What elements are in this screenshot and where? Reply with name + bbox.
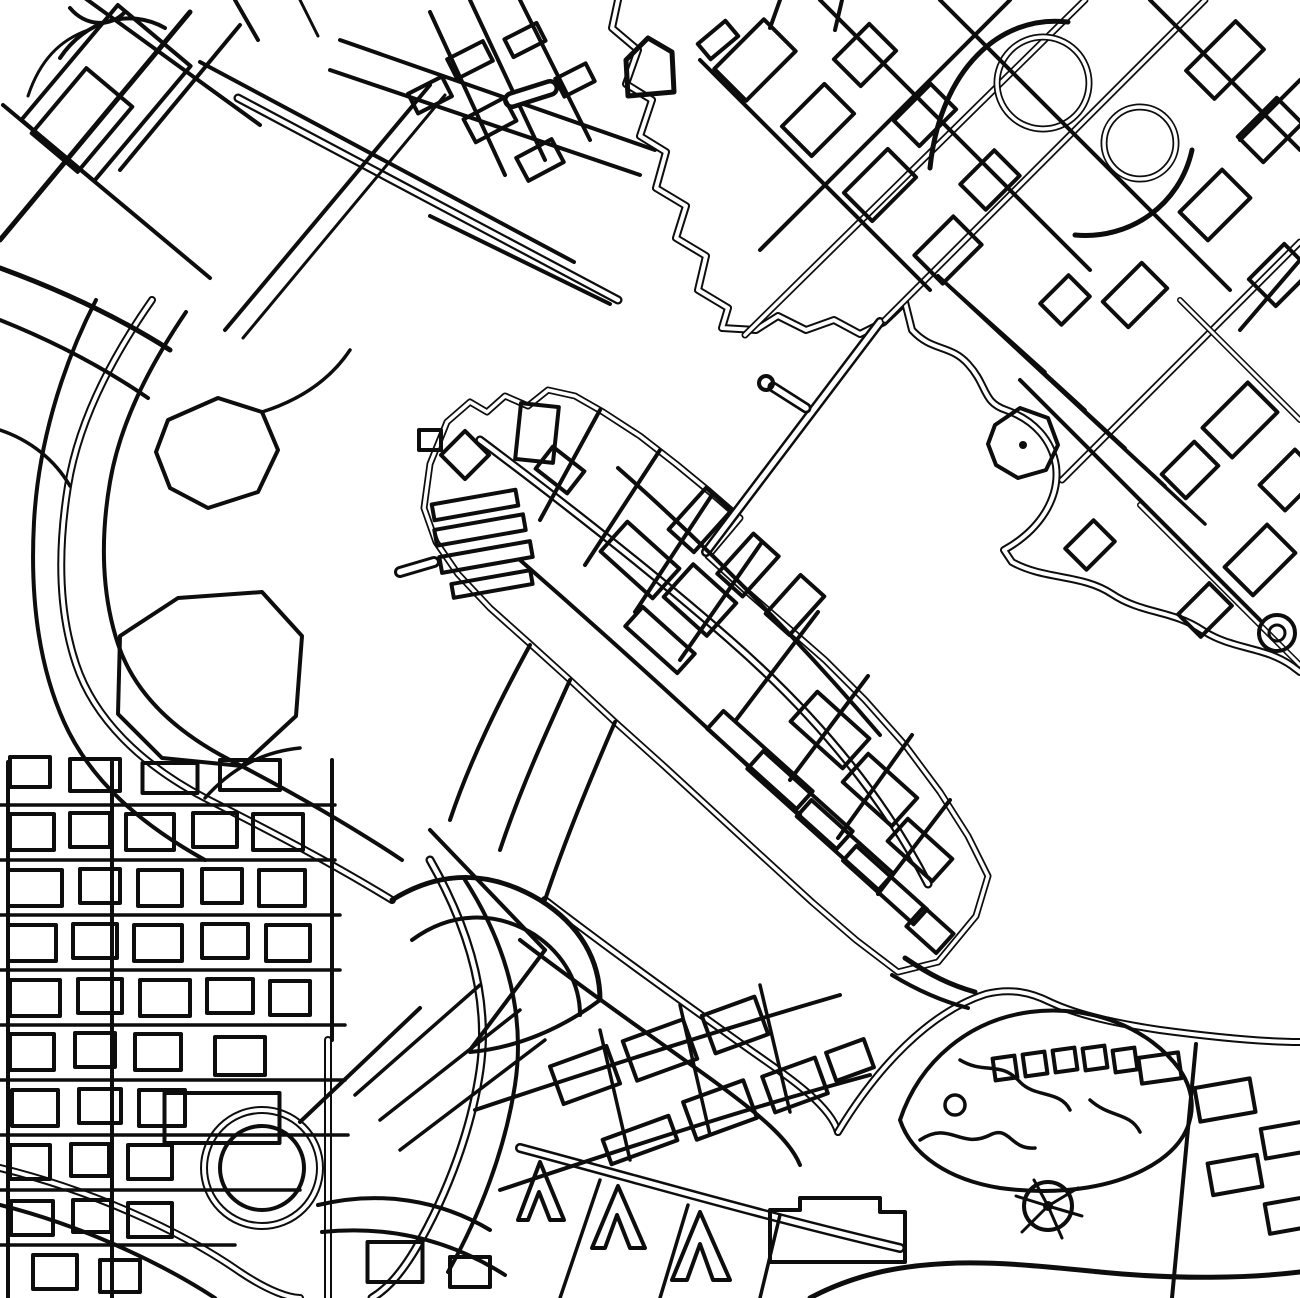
building-footprint <box>515 403 559 463</box>
building-footprint <box>193 813 237 847</box>
building-footprint <box>1040 275 1089 324</box>
building-footprint <box>139 1090 185 1126</box>
street <box>355 985 480 1095</box>
street <box>760 985 790 1112</box>
building-footprint <box>1138 1052 1181 1083</box>
building-footprint <box>78 979 122 1013</box>
street <box>60 0 260 125</box>
building-footprint <box>782 84 854 156</box>
building-footprint <box>207 979 253 1013</box>
grid-avenue-3-median <box>1062 242 1300 480</box>
park-pond-outline <box>118 592 302 766</box>
building-footprint <box>834 24 896 86</box>
bridge-pier-median <box>773 387 806 408</box>
building-footprint <box>202 869 242 903</box>
building-footprint <box>1225 525 1296 596</box>
building-footprint <box>1023 1052 1048 1077</box>
grid-avenue-4-median <box>1180 300 1300 420</box>
building-footprint <box>126 814 174 850</box>
building-footprint <box>960 150 1019 209</box>
building-footprint <box>10 814 54 850</box>
corner-arc <box>70 8 125 23</box>
street-stub <box>235 0 258 40</box>
building-footprint <box>270 981 310 1015</box>
northwest-avenue-median <box>238 98 618 300</box>
street <box>450 645 530 820</box>
bottom-boundary-road <box>810 1263 1300 1298</box>
street <box>330 70 640 175</box>
building-footprint <box>1260 450 1300 511</box>
park-path <box>1090 1100 1140 1132</box>
building-footprint <box>8 925 56 961</box>
street <box>500 1075 870 1190</box>
map-viewport <box>0 0 1300 1298</box>
building-footprint <box>10 1034 54 1070</box>
map-canvas <box>0 0 1300 1298</box>
park-loop-path <box>900 1010 1192 1190</box>
street <box>1172 1044 1196 1298</box>
building-footprint <box>70 813 110 847</box>
building-footprint <box>79 1089 121 1123</box>
building-footprint <box>12 1090 58 1126</box>
building-footprint <box>1238 98 1300 162</box>
building-footprint <box>603 1116 678 1164</box>
building-footprint <box>1065 520 1114 569</box>
building-footprint <box>1180 170 1251 241</box>
street <box>680 542 762 660</box>
harbor-bridge-median <box>706 322 880 552</box>
building-footprint <box>844 149 916 221</box>
park-path <box>262 350 350 412</box>
building-footprint <box>202 924 248 958</box>
building-footprint <box>10 757 50 787</box>
building-footprint <box>138 870 182 906</box>
street-stub <box>300 0 318 36</box>
building-footprint <box>1194 1078 1255 1121</box>
fountain-circle <box>945 1095 965 1115</box>
street <box>243 95 445 338</box>
courtyard-building <box>672 1212 730 1280</box>
street <box>520 0 590 140</box>
building-footprint <box>135 1034 181 1070</box>
building-footprint <box>1053 1048 1078 1073</box>
plaza-center-dot <box>1019 441 1027 449</box>
park-path <box>104 312 402 860</box>
building-footprint <box>10 980 60 1016</box>
building-footprint <box>1265 1196 1300 1234</box>
quay-inner-line <box>430 216 610 304</box>
street-stub <box>770 0 780 28</box>
building-footprint <box>100 1260 140 1292</box>
building-footprint <box>71 1144 109 1176</box>
building-footprint <box>134 925 182 961</box>
rotary-inner-ring <box>220 1126 304 1210</box>
street <box>1020 380 1260 620</box>
building-footprint <box>906 907 953 953</box>
building-footprint <box>266 925 310 961</box>
building-footprint <box>33 1255 77 1289</box>
building-footprint <box>21 5 190 181</box>
building-footprint <box>516 139 564 181</box>
street <box>545 722 615 900</box>
building-footprint <box>1203 383 1278 458</box>
building-footprint <box>75 1033 115 1067</box>
building-footprint <box>1103 263 1167 327</box>
map-features-layer <box>0 0 1300 1298</box>
park-path <box>920 1133 1035 1148</box>
building-footprint <box>140 980 190 1016</box>
building-footprint <box>766 575 825 635</box>
building-footprint <box>8 870 62 906</box>
building-footprint <box>1186 21 1264 99</box>
corner-arc <box>28 30 88 96</box>
building-footprint <box>914 216 981 283</box>
street <box>500 680 570 850</box>
street <box>892 975 968 1008</box>
building-footprint <box>1208 1155 1263 1195</box>
street <box>318 1198 490 1230</box>
park-pond-outline <box>156 398 278 508</box>
building-footprint <box>1083 1046 1108 1071</box>
park-connector <box>0 320 148 398</box>
loop-ramp-circle-west-median <box>997 37 1089 129</box>
building-footprint <box>1249 244 1300 306</box>
street <box>940 0 1230 290</box>
building-footprint <box>259 870 305 906</box>
coastline-northeast-district <box>612 0 1300 672</box>
building-footprint <box>128 1145 172 1179</box>
building-footprint <box>1113 1048 1138 1073</box>
street <box>618 468 880 735</box>
loop-ramp-circle-east-median <box>1104 107 1176 179</box>
park-path <box>0 430 70 486</box>
building-footprint <box>1261 1121 1300 1158</box>
courtyard-building <box>592 1186 645 1248</box>
building-footprint <box>215 1037 265 1075</box>
coastline-northeast-district-median <box>612 0 1300 672</box>
